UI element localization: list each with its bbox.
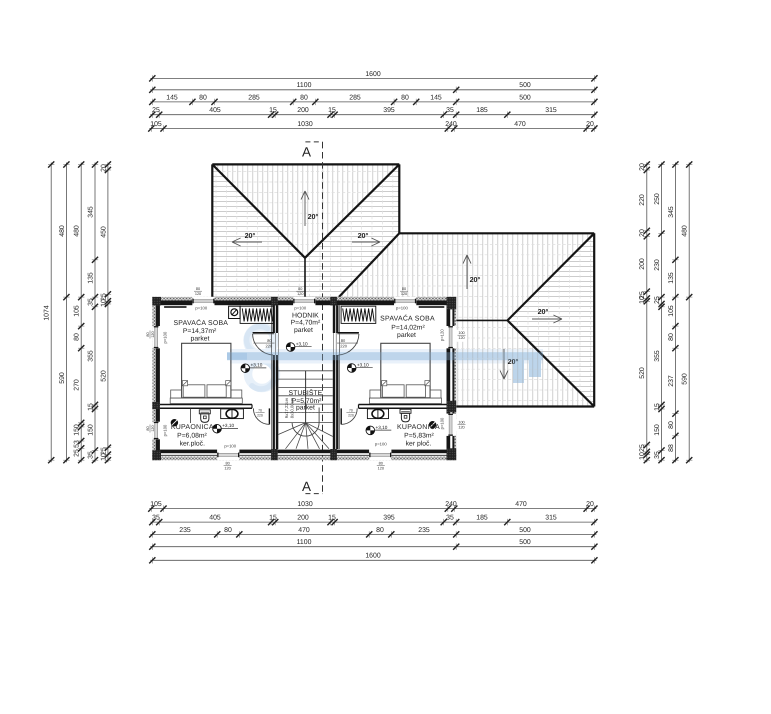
svg-text:p=100: p=100 <box>294 305 306 310</box>
svg-text:250: 250 <box>654 193 661 205</box>
svg-text:120: 120 <box>151 331 155 337</box>
svg-text:35: 35 <box>87 451 94 459</box>
svg-text:105: 105 <box>150 121 162 128</box>
svg-text:80: 80 <box>196 287 200 291</box>
svg-text:220: 220 <box>639 194 646 206</box>
svg-text:80: 80 <box>668 421 675 429</box>
svg-text:80: 80 <box>225 462 229 466</box>
svg-text:105: 105 <box>668 305 675 317</box>
svg-text:20: 20 <box>639 163 646 171</box>
svg-text:p=120: p=120 <box>440 329 445 341</box>
svg-text:20°: 20° <box>538 307 549 316</box>
svg-text:35: 35 <box>446 107 454 114</box>
svg-text:480: 480 <box>59 225 66 237</box>
svg-text:80: 80 <box>146 332 150 336</box>
svg-text:1600: 1600 <box>365 553 380 560</box>
svg-text:220: 220 <box>340 344 347 349</box>
svg-text:20°: 20° <box>245 231 256 240</box>
svg-text:285: 285 <box>248 94 260 101</box>
svg-text:135: 135 <box>87 272 94 284</box>
svg-text:KUPAONICA: KUPAONICA <box>397 424 440 431</box>
svg-text:70: 70 <box>258 409 262 413</box>
svg-text:10: 10 <box>100 453 107 461</box>
svg-text:20°: 20° <box>308 212 319 221</box>
svg-text:KUPAONICA: KUPAONICA <box>171 424 214 431</box>
svg-text:80: 80 <box>379 462 383 466</box>
svg-text:25: 25 <box>74 449 81 457</box>
svg-text:p=100: p=100 <box>396 305 408 310</box>
svg-text:185: 185 <box>476 515 488 522</box>
svg-text:470: 470 <box>515 501 527 508</box>
svg-text:235: 235 <box>179 527 191 534</box>
svg-text:355: 355 <box>87 350 94 362</box>
svg-text:270: 270 <box>74 379 81 391</box>
svg-text:53: 53 <box>74 440 81 448</box>
svg-text:20: 20 <box>639 229 646 237</box>
svg-text:p=100: p=100 <box>162 331 167 343</box>
svg-text:SPAVAĆA SOBA: SPAVAĆA SOBA <box>173 319 228 327</box>
svg-text:80: 80 <box>300 94 308 101</box>
svg-text:120: 120 <box>224 467 230 471</box>
svg-text:150: 150 <box>654 424 661 436</box>
svg-text:20: 20 <box>586 501 594 508</box>
svg-text:1030: 1030 <box>297 121 312 128</box>
svg-text:120: 120 <box>151 425 155 431</box>
svg-text:70: 70 <box>349 409 353 413</box>
svg-text:p=100: p=100 <box>162 424 167 436</box>
svg-text:500: 500 <box>519 94 531 101</box>
svg-text:ker.ploč.: ker.ploč. <box>180 440 205 447</box>
svg-text:parket: parket <box>397 332 416 339</box>
svg-text:80: 80 <box>146 426 150 430</box>
svg-text:80: 80 <box>298 287 302 291</box>
svg-text:230: 230 <box>654 259 661 271</box>
svg-text:+3,10: +3,10 <box>296 341 308 346</box>
svg-text:35: 35 <box>152 515 160 522</box>
svg-text:15: 15 <box>328 515 336 522</box>
svg-text:+3,10: +3,10 <box>376 425 388 430</box>
svg-text:590: 590 <box>682 373 689 385</box>
svg-text:35: 35 <box>87 298 94 306</box>
svg-text:500: 500 <box>519 539 531 546</box>
svg-text:10: 10 <box>639 452 646 460</box>
svg-text:20: 20 <box>100 164 107 172</box>
svg-text:120: 120 <box>195 292 201 296</box>
svg-text:10: 10 <box>639 296 646 304</box>
svg-text:20°: 20° <box>470 275 481 284</box>
svg-text:80: 80 <box>74 333 81 341</box>
svg-text:220: 220 <box>348 413 354 417</box>
svg-text:20°: 20° <box>358 231 369 240</box>
svg-text:105: 105 <box>150 501 162 508</box>
svg-text:80: 80 <box>401 94 409 101</box>
svg-text:+3,10: +3,10 <box>357 362 369 367</box>
svg-text:parket: parket <box>296 404 315 411</box>
svg-text:120: 120 <box>401 292 407 296</box>
svg-text:220: 220 <box>266 344 273 349</box>
svg-text:+3,10: +3,10 <box>251 363 263 368</box>
svg-text:p=100: p=100 <box>440 417 445 429</box>
svg-text:200: 200 <box>297 107 309 114</box>
svg-text:100: 100 <box>458 421 464 425</box>
svg-text:p=100: p=100 <box>195 305 207 310</box>
svg-text:235: 235 <box>418 527 430 534</box>
svg-text:120: 120 <box>458 336 464 340</box>
svg-text:15: 15 <box>269 515 277 522</box>
svg-text:15: 15 <box>328 107 336 114</box>
svg-text:145: 145 <box>430 94 442 101</box>
svg-text:20: 20 <box>586 121 594 128</box>
svg-text:P=5,83m²: P=5,83m² <box>404 432 434 439</box>
svg-text:1030: 1030 <box>297 501 312 508</box>
svg-text:150: 150 <box>87 424 94 436</box>
svg-text:88: 88 <box>668 444 675 452</box>
svg-text:120: 120 <box>297 292 303 296</box>
svg-text:200: 200 <box>639 258 646 270</box>
svg-text:500: 500 <box>519 527 531 534</box>
svg-text:parket: parket <box>294 327 313 334</box>
svg-text:480: 480 <box>682 225 689 237</box>
svg-text:10: 10 <box>100 299 107 307</box>
svg-text:P=4,70m²: P=4,70m² <box>291 320 321 327</box>
svg-text:80: 80 <box>402 287 406 291</box>
svg-text:120: 120 <box>458 426 464 430</box>
svg-text:500: 500 <box>519 82 531 89</box>
svg-text:25: 25 <box>639 444 646 452</box>
svg-text:35: 35 <box>654 451 661 459</box>
svg-text:405: 405 <box>209 107 221 114</box>
svg-text:345: 345 <box>87 206 94 218</box>
svg-text:A: A <box>302 479 311 494</box>
svg-text:520: 520 <box>639 367 646 379</box>
svg-text:590: 590 <box>59 372 66 384</box>
svg-text:315: 315 <box>545 107 557 114</box>
svg-text:+3,10: +3,10 <box>222 423 234 428</box>
svg-text:1100: 1100 <box>297 82 312 89</box>
svg-text:1100: 1100 <box>297 539 312 546</box>
svg-text:405: 405 <box>209 515 221 522</box>
svg-text:470: 470 <box>514 121 526 128</box>
svg-text:p=100: p=100 <box>375 442 387 447</box>
svg-text:ker ploč.: ker ploč. <box>406 440 432 447</box>
svg-text:145: 145 <box>166 94 178 101</box>
svg-text:80: 80 <box>376 527 384 534</box>
svg-text:parket: parket <box>191 336 210 343</box>
svg-text:HODNIK: HODNIK <box>292 313 319 320</box>
svg-text:9x17,22cm: 9x17,22cm <box>284 397 289 418</box>
svg-text:p=100: p=100 <box>224 443 236 448</box>
svg-text:315: 315 <box>545 515 557 522</box>
svg-text:15: 15 <box>269 107 277 114</box>
svg-text:395: 395 <box>383 107 395 114</box>
svg-text:15: 15 <box>654 403 661 411</box>
svg-text:120: 120 <box>378 467 384 471</box>
svg-text:35: 35 <box>446 515 454 522</box>
svg-text:15: 15 <box>87 403 94 411</box>
svg-text:345: 345 <box>668 206 675 218</box>
svg-text:25: 25 <box>654 296 661 304</box>
svg-text:100: 100 <box>458 331 464 335</box>
svg-text:P=14,37m²: P=14,37m² <box>183 328 217 335</box>
svg-text:200: 200 <box>297 515 309 522</box>
svg-text:80: 80 <box>267 338 272 343</box>
svg-text:80: 80 <box>668 333 675 341</box>
svg-text:1600: 1600 <box>365 71 380 78</box>
svg-text:240: 240 <box>445 121 457 128</box>
svg-text:237: 237 <box>668 375 675 387</box>
svg-text:185: 185 <box>476 107 488 114</box>
svg-text:80: 80 <box>224 527 232 534</box>
svg-text:285: 285 <box>349 94 361 101</box>
svg-text:P=6,08m²: P=6,08m² <box>177 433 207 440</box>
svg-text:220: 220 <box>257 413 263 417</box>
svg-text:SPAVAĆA SOBA: SPAVAĆA SOBA <box>380 315 435 323</box>
svg-text:520: 520 <box>100 370 107 382</box>
svg-text:P=14,02m²: P=14,02m² <box>391 324 425 331</box>
svg-text:80: 80 <box>199 94 207 101</box>
svg-text:STUBIŠTE: STUBIŠTE <box>289 388 323 397</box>
svg-text:25: 25 <box>152 107 160 114</box>
svg-text:480: 480 <box>74 225 81 237</box>
svg-text:1074: 1074 <box>44 305 51 320</box>
svg-text:135: 135 <box>668 272 675 284</box>
svg-text:240: 240 <box>445 501 457 508</box>
svg-text:150: 150 <box>74 424 81 436</box>
svg-text:A: A <box>302 145 311 160</box>
svg-text:470: 470 <box>298 527 310 534</box>
svg-text:355: 355 <box>654 350 661 362</box>
svg-text:395: 395 <box>383 515 395 522</box>
svg-text:105: 105 <box>74 305 81 317</box>
svg-text:80: 80 <box>341 338 346 343</box>
svg-text:450: 450 <box>100 226 107 238</box>
